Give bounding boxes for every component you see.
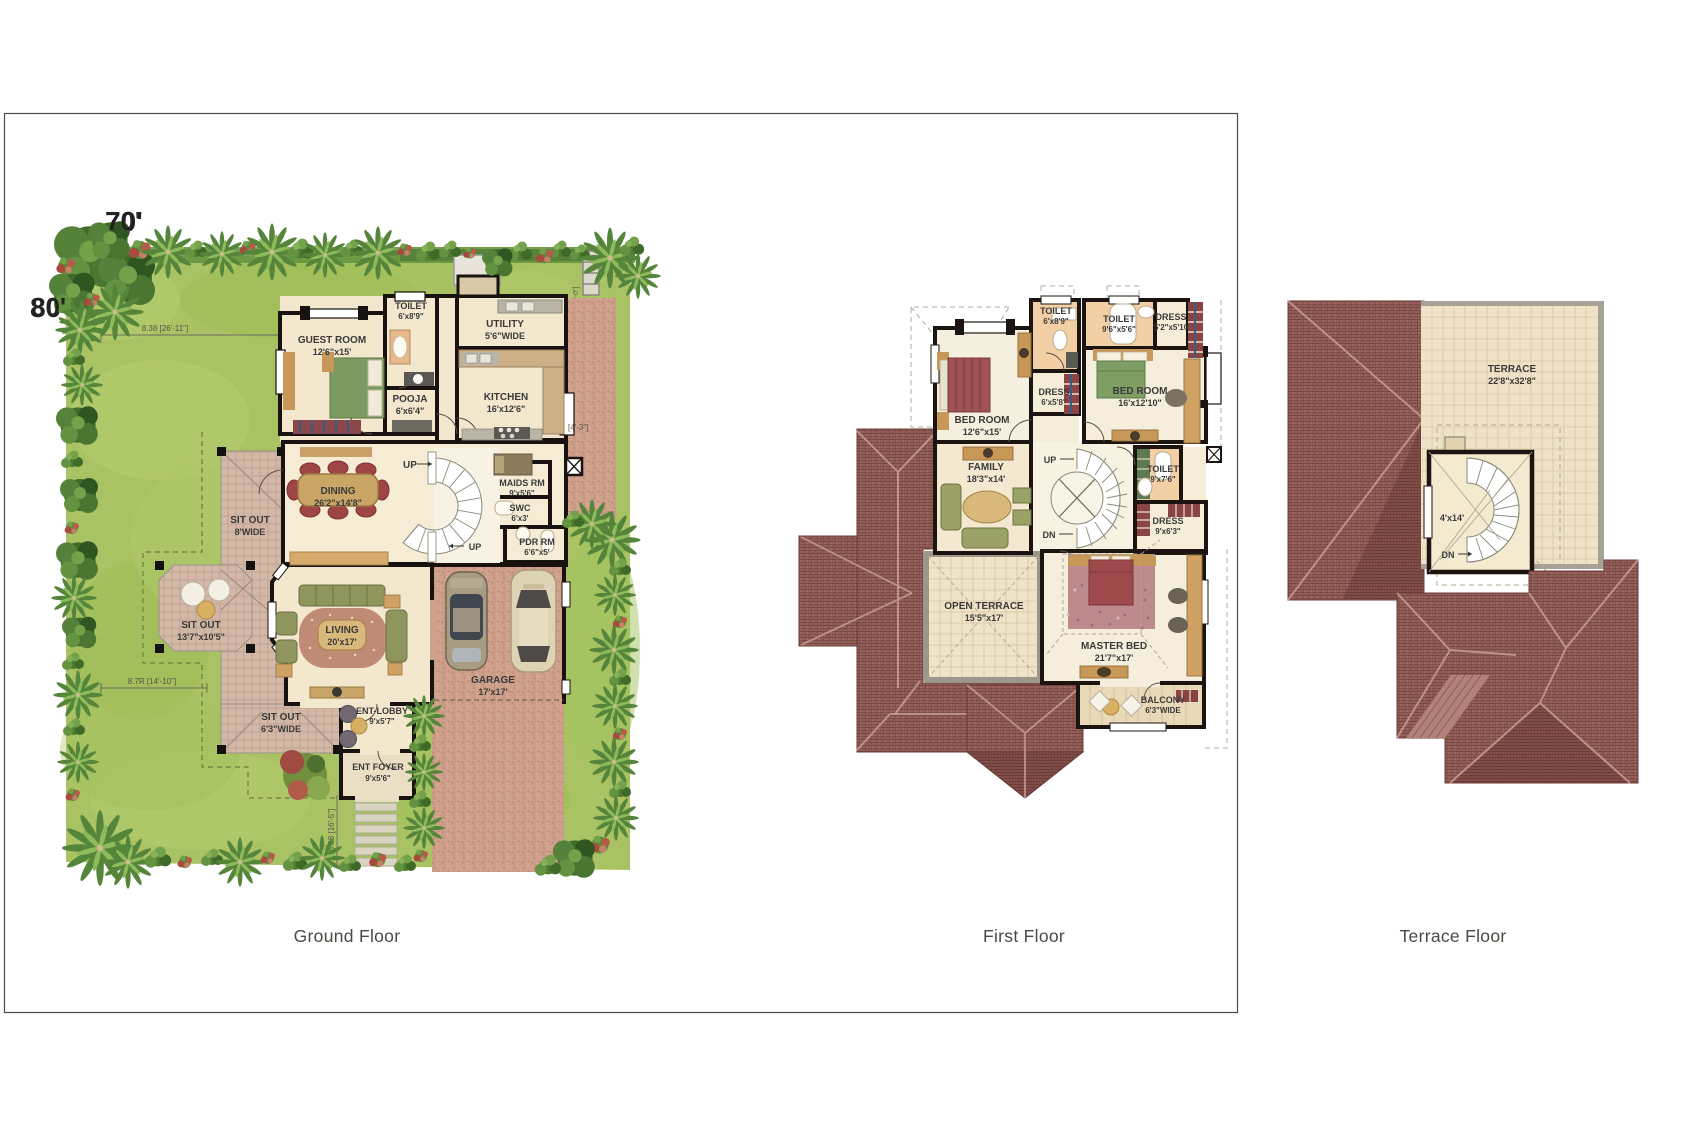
svg-text:UTILITY: UTILITY bbox=[486, 319, 524, 330]
svg-text:UP: UP bbox=[469, 542, 482, 552]
svg-text:80': 80' bbox=[31, 292, 66, 322]
svg-text:70': 70' bbox=[106, 206, 141, 236]
svg-text:22'8"x32'8": 22'8"x32'8" bbox=[1488, 376, 1536, 386]
svg-text:TERRACE: TERRACE bbox=[1488, 364, 1537, 375]
svg-text:9'x7'6": 9'x7'6" bbox=[1150, 475, 1176, 484]
svg-text:KITCHEN: KITCHEN bbox=[484, 392, 528, 403]
svg-text:6'x6'4": 6'x6'4" bbox=[396, 406, 425, 416]
svg-text:SIT OUT: SIT OUT bbox=[181, 620, 220, 631]
svg-text:DRESS: DRESS bbox=[1152, 516, 1183, 526]
svg-text:16'x12'10": 16'x12'10" bbox=[1118, 398, 1162, 408]
svg-text:6'3"WIDE: 6'3"WIDE bbox=[1145, 706, 1181, 715]
svg-text:6'6"x5': 6'6"x5' bbox=[524, 548, 549, 557]
svg-text:6'x8'9": 6'x8'9" bbox=[398, 312, 424, 321]
svg-text:5'2"x5'10: 5'2"x5'10 bbox=[1154, 323, 1189, 332]
svg-text:DRESS: DRESS bbox=[1155, 312, 1186, 322]
svg-text:GARAGE: GARAGE bbox=[471, 675, 515, 686]
svg-text:BED ROOM: BED ROOM bbox=[955, 415, 1010, 426]
svg-text:TOILET: TOILET bbox=[1147, 464, 1179, 474]
svg-text:8.7R [14'-10"]: 8.7R [14'-10"] bbox=[128, 677, 176, 686]
svg-text:TOILET: TOILET bbox=[1103, 314, 1135, 324]
svg-text:5'6"WIDE: 5'6"WIDE bbox=[485, 331, 525, 341]
svg-text:First Floor: First Floor bbox=[983, 926, 1065, 946]
svg-text:8'WIDE: 8'WIDE bbox=[235, 527, 266, 537]
svg-text:TOILET: TOILET bbox=[395, 301, 427, 311]
svg-text:DINING: DINING bbox=[321, 486, 356, 497]
svg-text:Terrace Floor: Terrace Floor bbox=[1400, 926, 1507, 946]
svg-text:BALCONY: BALCONY bbox=[1141, 695, 1186, 705]
svg-text:POOJA: POOJA bbox=[392, 394, 427, 405]
svg-text:GUEST ROOM: GUEST ROOM bbox=[298, 335, 366, 346]
svg-text:21'7"x17': 21'7"x17' bbox=[1095, 653, 1134, 663]
svg-text:MAIDS RM: MAIDS RM bbox=[499, 478, 545, 488]
svg-text:15'5"x17': 15'5"x17' bbox=[965, 613, 1004, 623]
svg-text:9'x5'6": 9'x5'6" bbox=[365, 774, 391, 783]
svg-text:SWC: SWC bbox=[510, 503, 531, 513]
svg-text:PDR RM: PDR RM bbox=[519, 537, 555, 547]
svg-text:SIT OUT: SIT OUT bbox=[230, 515, 269, 526]
svg-text:6'3"WIDE: 6'3"WIDE bbox=[261, 724, 301, 734]
svg-text:4'x14': 4'x14' bbox=[1440, 513, 1464, 523]
svg-text:TOILET: TOILET bbox=[1040, 306, 1072, 316]
svg-text:[4'-3"]: [4'-3"] bbox=[568, 423, 588, 432]
svg-text:20'x17': 20'x17' bbox=[327, 637, 356, 647]
svg-text:16'x12'6": 16'x12'6" bbox=[487, 404, 526, 414]
svg-text:17'x17': 17'x17' bbox=[478, 687, 507, 697]
svg-text:DN: DN bbox=[1043, 530, 1056, 540]
svg-text:9'6"x5'6": 9'6"x5'6" bbox=[1102, 325, 1136, 334]
svg-text:DN: DN bbox=[1442, 550, 1455, 560]
svg-text:9'x5'7": 9'x5'7" bbox=[369, 717, 395, 726]
svg-text:9'x5'6": 9'x5'6" bbox=[509, 489, 535, 498]
svg-text:LIVING: LIVING bbox=[325, 625, 359, 636]
svg-text:UP: UP bbox=[1044, 455, 1057, 465]
svg-text:18'3"x14': 18'3"x14' bbox=[967, 474, 1006, 484]
svg-text:BED ROOM: BED ROOM bbox=[1113, 386, 1168, 397]
svg-text:13'7"x10'5": 13'7"x10'5" bbox=[177, 632, 225, 642]
svg-text:26'2"x14'8": 26'2"x14'8" bbox=[314, 498, 362, 508]
svg-text:OPEN TERRACE: OPEN TERRACE bbox=[944, 601, 1024, 612]
svg-text:ENT-LOBBY: ENT-LOBBY bbox=[356, 706, 408, 716]
svg-text:SIT OUT: SIT OUT bbox=[261, 712, 300, 723]
svg-text:12'6"x15': 12'6"x15' bbox=[313, 347, 352, 357]
svg-text:FAMILY: FAMILY bbox=[968, 462, 1004, 473]
svg-text:6'x3': 6'x3' bbox=[511, 514, 528, 523]
svg-text:Ground Floor: Ground Floor bbox=[294, 926, 401, 946]
svg-text:6'x8'9": 6'x8'9" bbox=[1043, 317, 1069, 326]
svg-text:6'x5'8": 6'x5'8" bbox=[1041, 398, 1067, 407]
svg-text:8.38 [26'-11"]: 8.38 [26'-11"] bbox=[142, 324, 188, 333]
svg-text:9'x6'3": 9'x6'3" bbox=[1155, 527, 1181, 536]
svg-text:ENT FOYER: ENT FOYER bbox=[352, 762, 404, 772]
svg-text:DRESS: DRESS bbox=[1038, 387, 1069, 397]
svg-text:MASTER BED: MASTER BED bbox=[1081, 641, 1147, 652]
svg-text:UP: UP bbox=[403, 460, 417, 471]
svg-text:12'6"x15': 12'6"x15' bbox=[963, 427, 1002, 437]
